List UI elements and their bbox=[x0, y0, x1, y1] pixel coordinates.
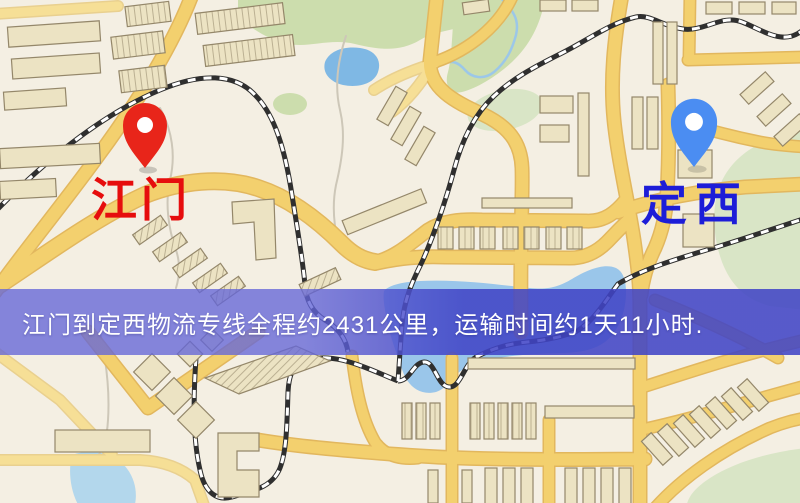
pin-shadow bbox=[688, 165, 707, 172]
destination-pin-hole bbox=[685, 113, 703, 131]
map-view[interactable]: 江门 定西 江门到定西物流专线全程约2431公里，运输时间约1天11小时. bbox=[0, 0, 800, 503]
origin-label: 江门 bbox=[91, 173, 191, 227]
map-canvas[interactable]: 江门 定西 bbox=[0, 0, 800, 503]
route-info-text: 江门到定西物流专线全程约2431公里，运输时间约1天11小时. bbox=[22, 305, 703, 340]
origin-pin-icon bbox=[123, 103, 167, 168]
origin-pin-hole bbox=[137, 117, 153, 133]
route-info-banner: 江门到定西物流专线全程约2431公里，运输时间约1天11小时. bbox=[0, 289, 800, 355]
destination-label: 定西 bbox=[641, 177, 749, 231]
origin-marker[interactable] bbox=[123, 103, 167, 174]
lake-top bbox=[324, 48, 379, 86]
